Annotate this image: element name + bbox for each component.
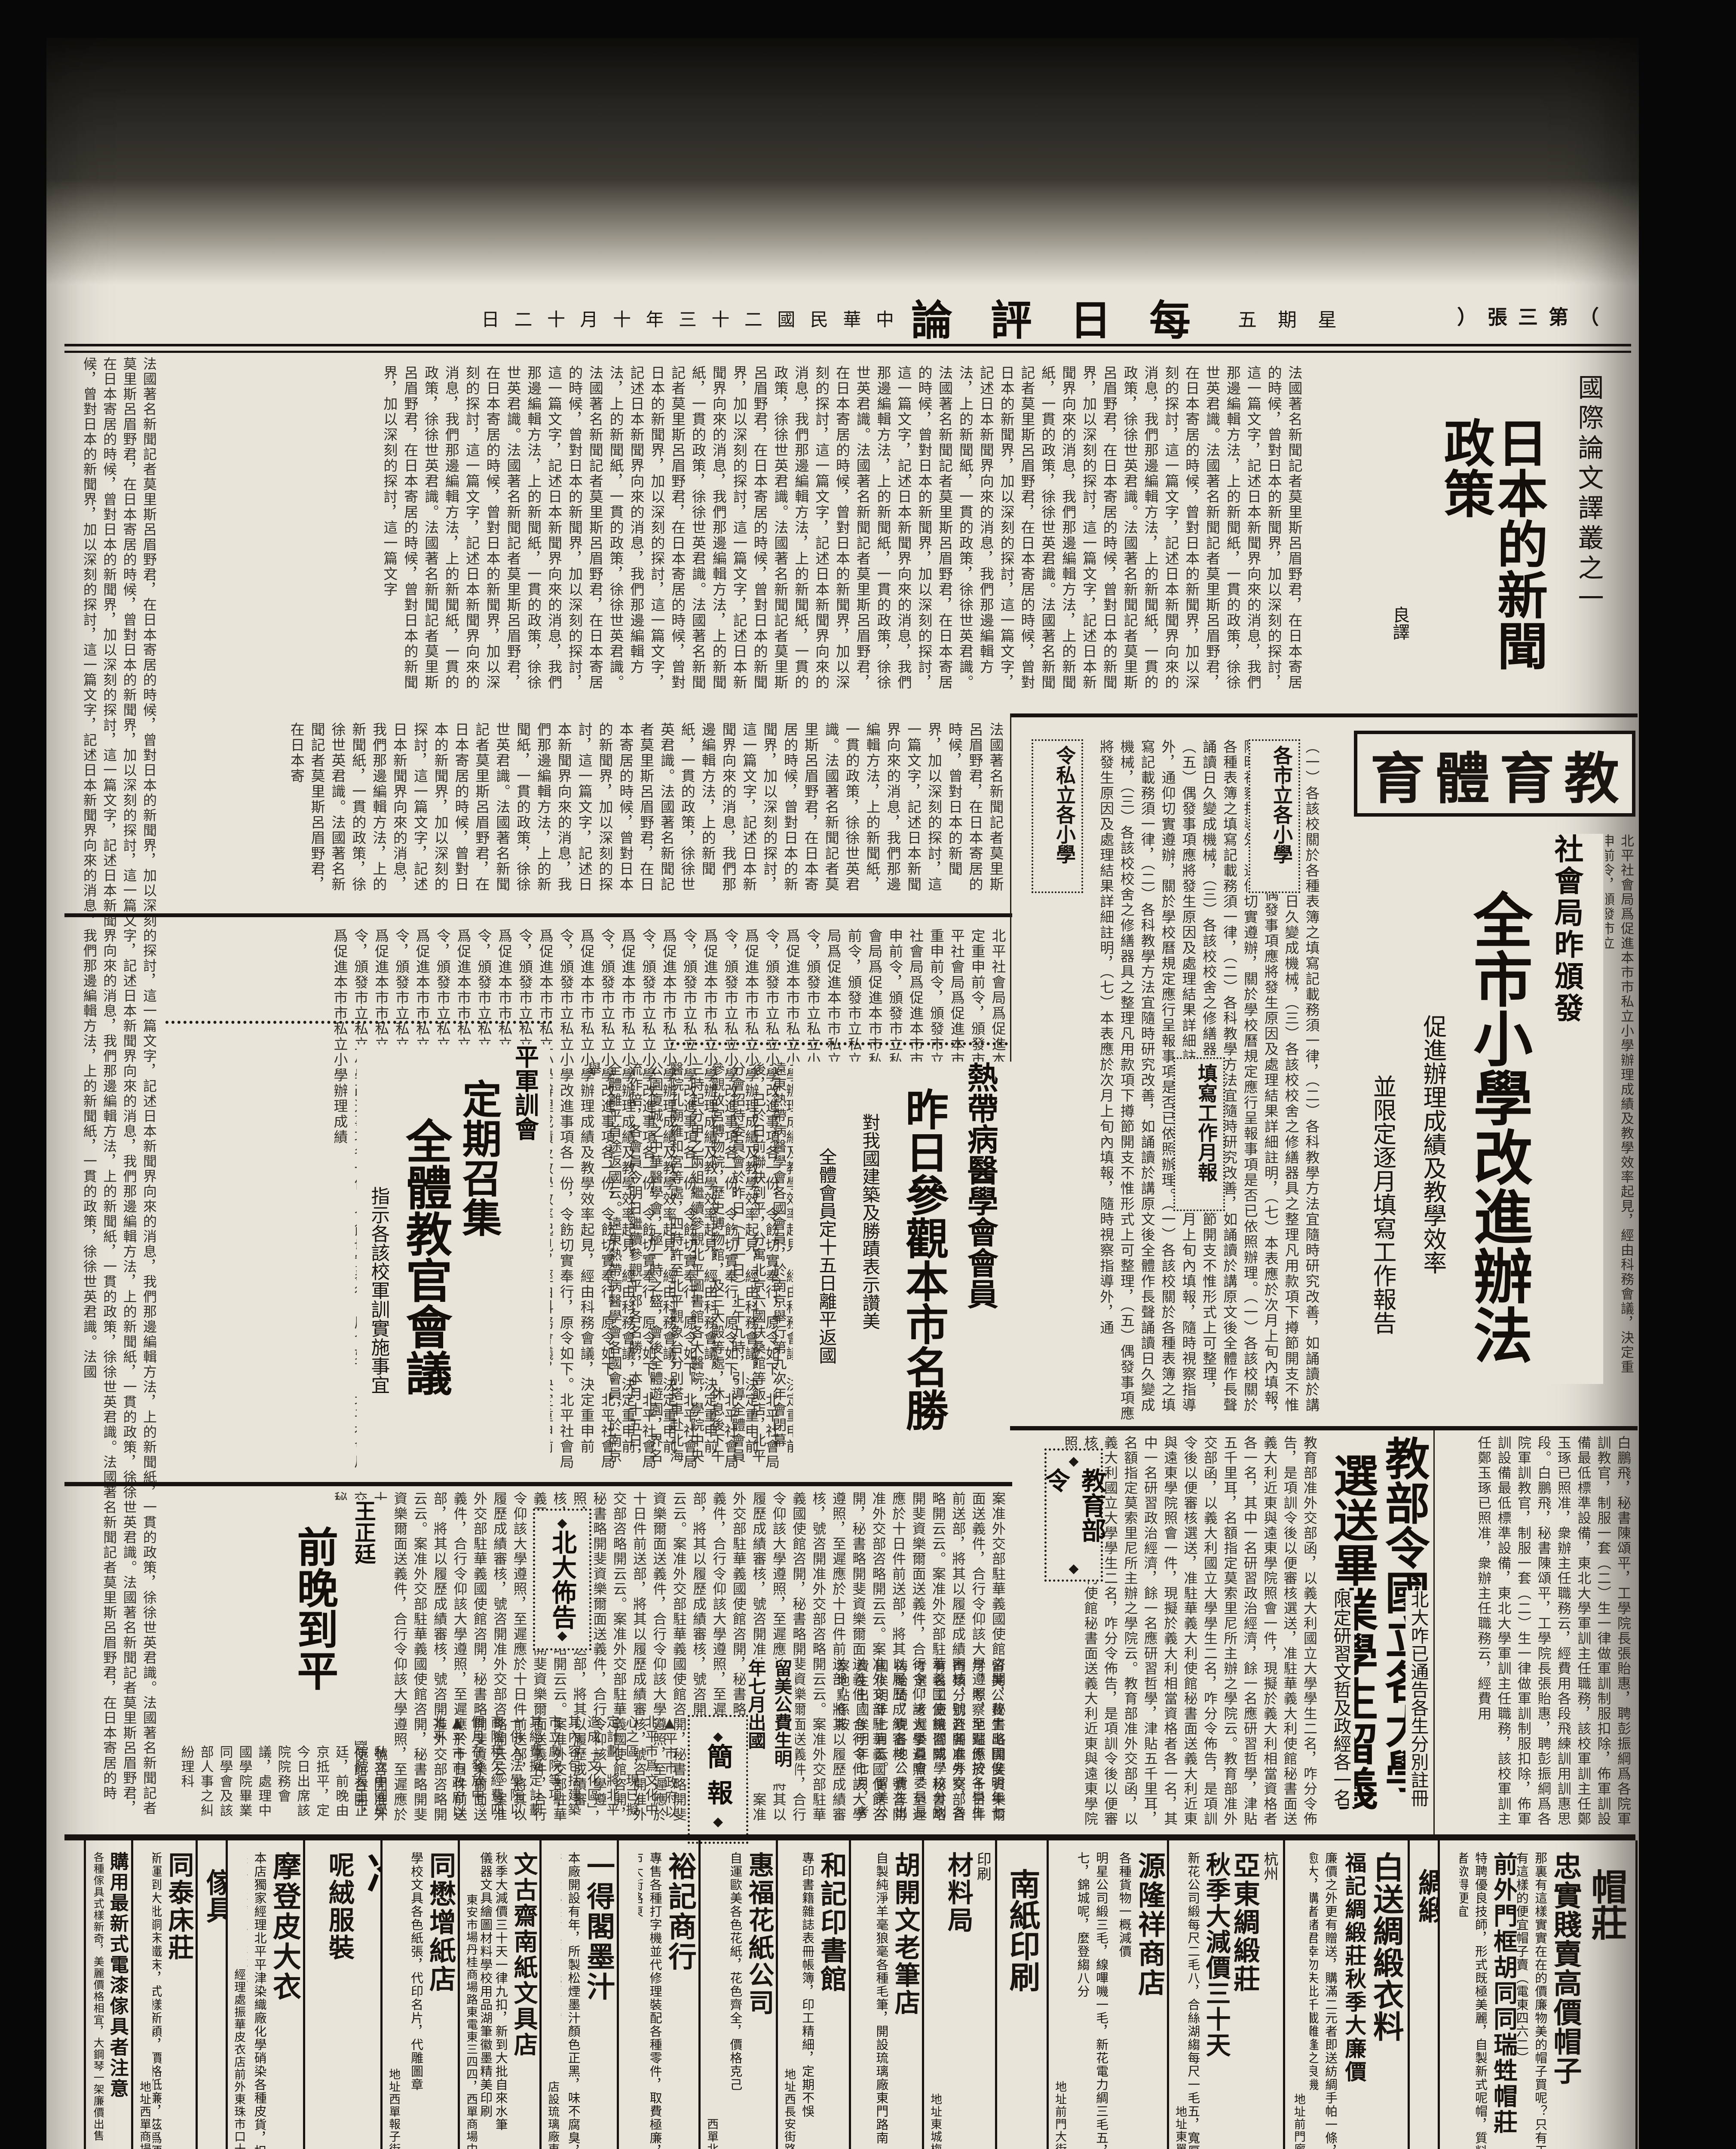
ad-headline: 秋季大減價三十天 (1202, 1852, 1230, 2058)
ad-shop-name: 同懋增紙店 (426, 1852, 455, 1993)
body-text-columns: 法國著名新聞記者莫里斯呂眉野君，在日本寄居的時候，曾對日本的新聞界，加以深刻的探… (165, 722, 1006, 907)
page-marker: （第三張） (1457, 301, 1599, 331)
ad-headline: 白送綢緞衣料 (1369, 1852, 1402, 2042)
story-wang-arrival: 王正廷 前晚到平 (279, 1500, 391, 1741)
head-pku-notice: 北大佈告 (533, 1509, 591, 1650)
story-military-training-meeting: 平軍訓會 定期召集 全體教官會議 指示各該校軍訓實施事宜 (357, 1044, 550, 1474)
ad-contact: 店設琉璃廠東門電話南局二一四五 (544, 2081, 561, 2149)
ad-body: 那裏有這樣實實在在的價廉物美的帽子買呢？只有王府井同陞和才有這樣的便宜帽子賣（電… (1517, 1852, 1549, 2149)
ad-contact: 地址西單商場對面路西電西三四八 (136, 2081, 153, 2149)
ad-contact: 東安市場丹桂商場路東電東三四四，西單商場中門路南電西局一四二 (462, 1894, 479, 2149)
story-citywide-primary-school-reform: 社會局昨頒發 全市小學改進辦法 促進辦理成績及教學效率 並限定逐月填寫工作報告 (1350, 834, 1603, 1384)
ad-contact: 地址前門大街路東電南分局一六六 (1051, 2081, 1068, 2149)
ad-shop-name: 裕記商行 (664, 1852, 696, 1972)
lead-title: 全市小學改進辦法 (1466, 890, 1529, 1384)
tropical-subhead: 對我國建築及勝蹟表示讚美 (857, 1113, 883, 1474)
ad-yuanlongxiang-store: 源隆祥商店 各種貨物一概減價 明星公司緞三毛，線嗶嘰一毛，新花電力綢三毛五，經絲… (1047, 1840, 1167, 2149)
masthead-title: 每日評論 (911, 292, 1191, 342)
ad-tongmaozeng-paper: 同懋增紙店 學校文具各色紙張，代印名片，代雕圖章 地址西單報子街口外路西電西五九… (380, 1840, 458, 2149)
body-text-columns: 白鵬飛，秘書陳頌平，工學院長張貽惠，聘彭振綱爲各院軍訓教官，制服一套（二）生一律… (1438, 1436, 1633, 1835)
ad-body: 專印書籍雜誌表冊帳簿，印工精細，定期不悞 (797, 1852, 816, 2118)
tropical-subhead: 全體會員定十五日離平返國 (814, 1148, 840, 1474)
story-title: 日本的新聞政策 (1438, 417, 1544, 692)
ad-hukaiwen-brush-store: 胡開文老筆店 自製純淨羊毫狼毫各種毛筆，開設琉璃廠東門路南 電南二一七四 (849, 1840, 922, 2149)
ad-yuji-trading: 裕記商行 專售各種打字機並代修理裝配各種零件，取費極廉，開設在東城米市大街路東 … (617, 1840, 698, 2149)
head-study-abroad: 留美公費生明年七月出國 (748, 1659, 795, 1784)
ad-tongtai-bed-shop: 同泰床莊 新運到大批銅床鐵床，式樣新穎，價格低廉，茲爲便利惠用諸君起見，特別歡迎… (131, 1840, 196, 2149)
ad-shop-name: 呢絨服裝 (325, 1852, 353, 1962)
body-text-columns: 法國著名新聞記者莫里斯呂眉野君，在日本寄居的時候，曾對日本的新聞界，加以深刻的探… (64, 357, 159, 1827)
masthead-date: 中華民國二十三年十月十二日 (481, 305, 894, 331)
ad-wool-clothing: 冷 冷天快到了，不預備兩件皮衣嗎，東珠市口錦章號各色皮貨俱全 呢絨服裝 電話南分… (303, 1840, 380, 2149)
training-kicker: 平軍訓會 (508, 1044, 542, 1474)
ad-headline: 忠實賤賣高價帽子 (1549, 1852, 1581, 2085)
story-tropical-medicine-visit: 熱帶病醫學會會員 昨日參觀本市名勝 對我國建築及勝蹟表示讚美 全體會員定十五日離… (793, 1062, 1013, 1474)
column-head-municipal-schools: 各市立各小學 (1249, 739, 1300, 893)
body-text-columns: 法國著名新聞記者莫里斯呂眉野君，在日本寄居的時候，曾對日本的新聞界，加以深刻的探… (165, 365, 1304, 705)
lead-subhead: 並限定逐月填寫工作報告 (1366, 1074, 1400, 1384)
training-title-b: 全體教官會議 (400, 1117, 449, 1474)
story-byline: 良譯 (1387, 606, 1412, 692)
ad-shop-name: 源隆祥商店 (1133, 1852, 1164, 1998)
ad-shop-name: 一得閣墨汁 (582, 1852, 614, 2002)
ad-body: 本廠開設有年，所製松煙墨汁顏色正黑，味不腐臭，久爲各界所贊許，大小裝皆俱備，光便… (561, 1852, 582, 2149)
training-title-a: 定期召集 (457, 1079, 499, 1474)
ad-wenguzhai-stationery: 文古齋南紙文具店 秋季大減價三十天一律九扣，新到大批自來水筆 儀器文具繪圖材料學… (458, 1840, 539, 2149)
column-rule (1433, 1430, 1435, 1834)
ad-contact: 經理處振華皮衣店前外東珠市口十號電南分局八六〇號 (230, 1968, 247, 2149)
column-head-private-schools: 令私立各小學 (1032, 739, 1083, 893)
ad-body: 自運歐美各色花紙，花色齊全，價格克己 (720, 1852, 744, 2091)
ad-shop-name: 摩登皮大衣 (269, 1852, 300, 2002)
section-rule (1010, 713, 1638, 717)
ad-contact: 地址東城梅竹胡同電東四三八三 (927, 2093, 943, 2149)
selection-subhead: 限定研習文哲及政經各一名 (1328, 1590, 1354, 1807)
body-text-columns: ▲平市市政府以北平市爲文化中心之區，現已擬定計劃，將北平造成「文化區」，其內容包… (404, 1715, 679, 1831)
newspaper-scan: （第三張） 每日評論 星期五 中華民國二十三年十月十二日 國際論文譯叢之一 日本… (0, 0, 1736, 2149)
ad-shop-name: 福記綢緞莊秋季大廉價 (1342, 1852, 1366, 2084)
ad-body: 儀器文具繪圖材料學校用品湖筆徽墨精美印刷 (479, 1852, 495, 2118)
wang-kicker: 王正廷 (348, 1500, 379, 1741)
section-rule (64, 913, 1012, 917)
section-banner-education-sports: 教育體育 (1354, 731, 1635, 817)
ad-small: 印刷 (972, 1852, 993, 1881)
ad-shop-name: 購用最新式電漆傢具者注意 (107, 1852, 128, 2099)
ad-contact: 地址前門廊房頭條電南一七六七 (1290, 2093, 1307, 2149)
ad-shop-name: 文古齋南紙文具店 (510, 1852, 537, 2058)
wang-title: 前晚到平 (291, 1526, 336, 1741)
head-brief-news: 簡報 (688, 1715, 748, 1844)
body-text-columns: 私立中國學院院長王正廷，前晚由京抵平，定今日出席該院院務會議，處理中國學院畢業同… (165, 1745, 389, 1831)
lead-kicker: 社會局昨頒發 (1545, 834, 1587, 1384)
lead-subhead: 促進辦理成績及教學效率 (1416, 1014, 1450, 1384)
ad-modern-fur-coat: 摩登皮大衣 本店獨家經理北平平津染織廠化學硝染各種皮貨，担保無臭味，不畏水，不腐… (226, 1840, 303, 2149)
ad-note: 秋季大減價三十天一律九扣，新到大批自來水筆 (495, 1852, 510, 2131)
ad-shop-name: 亞東綢緞莊 (1230, 1852, 1259, 1993)
story-kicker: 國際論文譯叢之一 (1570, 374, 1607, 692)
ad-label-silk: 綢緞 (1408, 1840, 1438, 2149)
ad-shop-name: 胡開文老筆店 (891, 1852, 919, 2017)
dotted-rule (671, 1042, 1008, 1045)
ad-shop-name: 材料局 (943, 1852, 972, 1934)
ad-body: 專售各種打字機並代修理裝配各種零件，取費極廉，開設在東城米市大街路東 (638, 1852, 664, 2149)
ad-tihua-materials: 惕華 印刷 材料局 本局專製各號銅模中西鉛字新樣機器堅固保用 地址東城梅竹胡同電… (922, 1840, 995, 2149)
ad-contact: 地址西長安街路南電話南局六七七號 (781, 2068, 797, 2149)
tropical-title-2: 昨日參觀本市名勝 (900, 1087, 946, 1474)
ad-points: 特聘優良技師，形式既極美麗，自製新式呢帽，質料又很精緻，購者欲得便宜 (1460, 1852, 1490, 2149)
ad-yadong-silk-shop: 杭州 亞東綢緞莊 秋季大減價三十天 新花公司緞每尺二毛八，合絲湖縐每尺一毛五，寬… (1167, 1840, 1283, 2149)
column-head-monthly-report: 填寫工作月報 (1173, 1057, 1225, 1211)
ad-shop-name: 和記印書館 (817, 1852, 846, 1993)
ad-body: 廉價之外更有贈送，購滿二元者即送紡綢手帕一條，贈貨愈多贈送愈大，購者諸君幸勿失此… (1310, 1852, 1340, 2149)
ad-shop-name: 惠福花紙公司 (744, 1852, 773, 2017)
ad-label: 帽莊 (1581, 1868, 1633, 2149)
ad-body: 本店獨家經理北平平津染織廠化學硝染各種皮貨，担保無臭味，不畏水，不腐蝕，不落色 (247, 1852, 269, 2149)
ad-body: 新花公司緞每尺二毛八，合絲湖縐每尺一毛五，寬厚絨條布每元二十尺，印花毛絲葛每尺二… (1188, 1852, 1202, 2149)
ad-shop-name: 前外門框胡同同瑞甡帽莊 (1490, 1852, 1517, 2135)
training-subhead: 指示各該校軍訓實施事宜 (364, 1186, 392, 1474)
tropical-title-1: 熱帶病醫學會會員 (963, 1062, 996, 1474)
body-text-columns: 留美公費生出國俟明年七月，考察地點係按各學生門類分別赴各處考察，各有名工廠機關或… (808, 1659, 1006, 1831)
dotted-rule (165, 1021, 552, 1024)
ad-body: 學校文具各色紙張，代印名片，代雕圖章 (402, 1852, 425, 2091)
ad-contact: 西單北大街電話西局八二七 (703, 2118, 720, 2149)
ad-contact: 地址東單二條口內電東三〇六 (1172, 2106, 1188, 2149)
ad-hoki-printing-house: 和記印書館 專印書籍雜誌表冊帳簿，印工精細，定期不悞 地址西長安街路南電話南局六… (776, 1840, 849, 2149)
ads-top-rule (64, 1834, 1635, 1840)
ad-lacquer-furniture-notice: 購用最新式電漆傢具者注意 各種傢具式樣新奇，美麗價格相宜，大鋼琴一架廉價出售 (84, 1840, 131, 2149)
ad-body: 新運到大批銅床鐵床，式樣新穎，價格低廉，茲爲便利惠用諸君起見，特別歡迎參觀選購 (153, 1852, 164, 2149)
advertisement-row: 帽莊 忠實賤賣高價帽子 那裏有這樣實實在在的價廉物美的帽子買呢？只有王府井同陞和… (75, 1840, 1638, 2149)
ad-big-char: 冷 (353, 1852, 380, 1895)
ad-label-southern-paper-printing: 南紙印刷 (995, 1840, 1047, 2149)
header-rule (64, 344, 1631, 353)
ad-shop-name: 同泰床莊 (164, 1852, 193, 1962)
section-rule (64, 1482, 1012, 1486)
selection-subhead: 北大咋已通告各生分別註冊 (1405, 1590, 1432, 1807)
ad-yidege-ink: 一得閣墨汁 本廠開設有年，所製松煙墨汁顏色正黑，味不腐臭，久爲各界所贊許，大小裝… (539, 1840, 617, 2149)
section-rule (1010, 1426, 1638, 1430)
ad-huifu-wallpaper: 惠福花紙公司 自運歐美各色花紙，花色齊全，價格克己 西單北大街電話西局八二七 (698, 1840, 776, 2149)
ad-contact: 地址西單報子街口外路西電西五九〇 (385, 2068, 402, 2149)
ad-note: 各種貨物一概減價 (1111, 1852, 1134, 1958)
ad-hat-shop: 帽莊 忠實賤賣高價帽子 那裏有這樣實實在在的價廉物美的帽子買呢？只有王府井同陞和… (1438, 1840, 1635, 2149)
ad-fuji-silk-shop: 白送綢緞衣料 福記綢緞莊秋季大廉價 廉價之外更有贈送，購滿二元者即送紡綢手帕一條… (1283, 1840, 1408, 2149)
story-japan-press-policy: 國際論文譯叢之一 日本的新聞政策 良譯 (1315, 365, 1607, 692)
body-text-columns: 北平社會局爲促進本市市私立小學辦理成績及教學效率起見，經由科務會議，決定重申前令… (1605, 834, 1635, 1384)
head-ministry-order: 教育部令 (1044, 1448, 1103, 1582)
ad-kicker: 杭州 (1259, 1852, 1280, 1881)
masthead-weekday: 星期五 (1238, 305, 1337, 331)
body-text-columns: 遠東熱帶病醫學會各國會員，於南京舉行第九次年會閉幕後，已於日前聯袂到平，分寓北京… (554, 1062, 789, 1474)
ad-body: 明星公司緞三毛，線嗶嘰一毛，新花電力綢三毛五，經絲春綢一毛七，錦城呢，麼登縐八分 (1068, 1852, 1110, 2149)
ad-body: 各種傢具式樣新奇，美麗價格相宜，大鋼琴一架廉價出售 (89, 1852, 106, 2142)
ad-body: 自製純淨羊毫狼毫各種毛筆，開設琉璃廠東門路南 (870, 1852, 891, 2145)
ad-label-furniture: 傢具 (196, 1840, 226, 2149)
